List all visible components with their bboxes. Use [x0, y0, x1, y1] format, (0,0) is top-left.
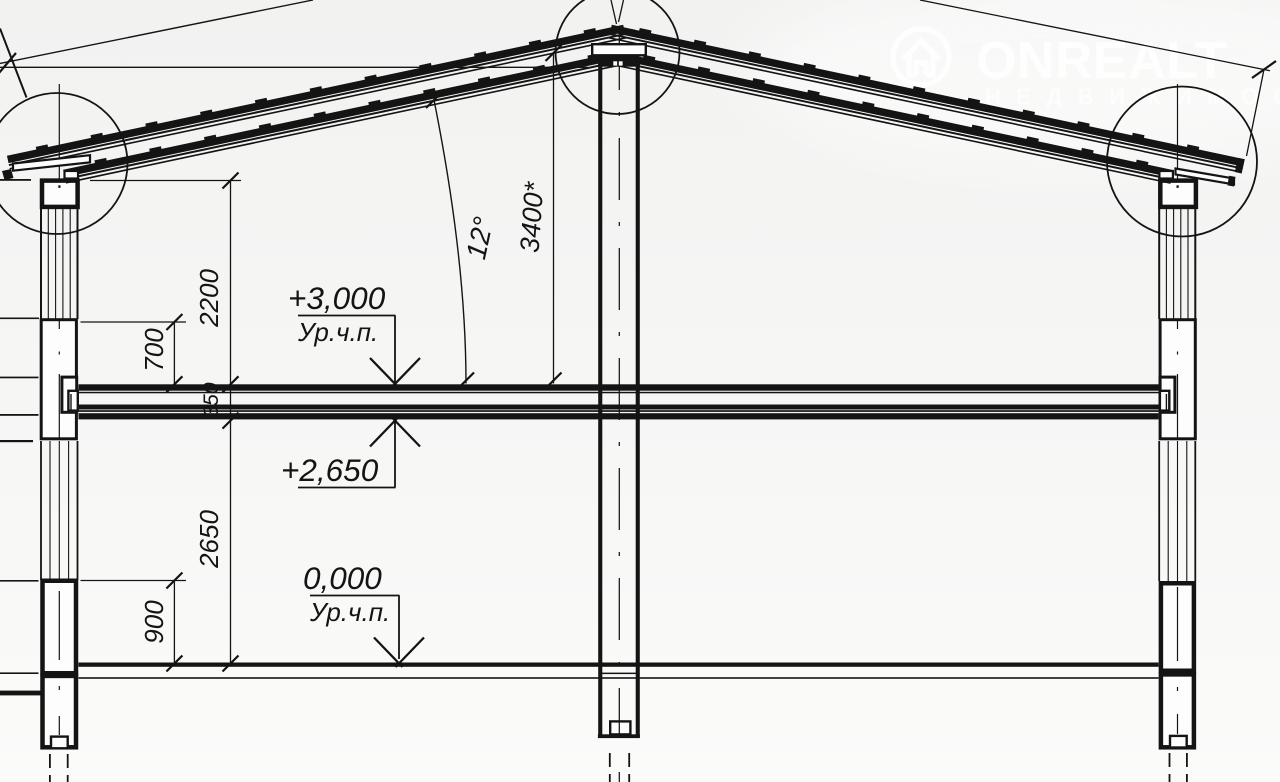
svg-text:2200: 2200: [194, 269, 224, 328]
svg-text:+3,000: +3,000: [288, 280, 386, 316]
svg-text:+2,650: +2,650: [281, 452, 379, 488]
svg-text:350: 350: [200, 382, 223, 417]
svg-text:900: 900: [139, 600, 169, 644]
svg-text:0,000: 0,000: [303, 560, 382, 596]
svg-text:700: 700: [139, 328, 169, 372]
svg-text:ONREALT: ONREALT: [976, 32, 1227, 90]
svg-text:2650: 2650: [194, 510, 224, 569]
svg-text:Ур.ч.п.: Ур.ч.п.: [297, 317, 378, 347]
svg-text:Ур.ч.п.: Ур.ч.п.: [309, 597, 390, 627]
svg-text:3400*: 3400*: [515, 180, 550, 254]
